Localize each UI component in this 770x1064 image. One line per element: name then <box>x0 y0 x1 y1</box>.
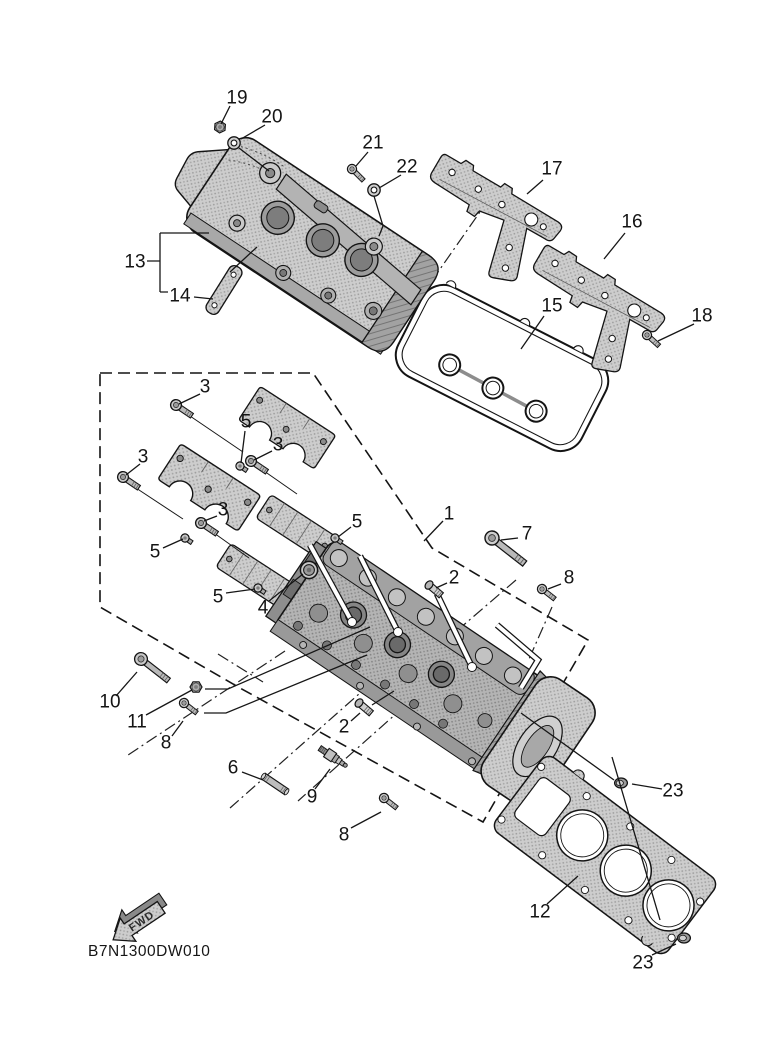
callout-3[interactable]: 3 <box>218 500 229 521</box>
callout-14[interactable]: 14 <box>169 286 191 307</box>
callout-23[interactable]: 23 <box>632 953 653 974</box>
nut-19 <box>212 119 228 134</box>
callout-8[interactable]: 8 <box>339 825 350 846</box>
bolt-3 <box>169 398 195 421</box>
callout-11[interactable]: 11 <box>127 712 147 733</box>
bolt-2 <box>423 579 444 599</box>
callout-5[interactable]: 5 <box>213 587 224 608</box>
callout-5[interactable]: 5 <box>150 542 161 563</box>
callout-3[interactable]: 3 <box>273 435 284 456</box>
bolt-2 <box>353 697 374 717</box>
spark-plug-9 <box>317 744 350 771</box>
plug-4 <box>300 561 317 578</box>
callout-7[interactable]: 7 <box>522 524 533 545</box>
callout-20[interactable]: 20 <box>261 107 282 128</box>
washer-22 <box>368 184 380 196</box>
bolt-3 <box>244 454 270 477</box>
callout-2[interactable]: 2 <box>339 717 350 738</box>
washer-20 <box>228 137 240 149</box>
fwd-arrow: FWD <box>102 887 174 951</box>
bolt-10 <box>132 650 173 686</box>
callout-12[interactable]: 12 <box>529 902 550 923</box>
callout-3[interactable]: 3 <box>138 447 149 468</box>
callout-21[interactable]: 21 <box>362 133 383 154</box>
callout-6[interactable]: 6 <box>228 758 239 779</box>
callout-16[interactable]: 16 <box>621 212 642 233</box>
stud-6 <box>260 772 290 795</box>
callout-17[interactable]: 17 <box>541 159 562 180</box>
callout-2[interactable]: 2 <box>449 568 460 589</box>
callout-3[interactable]: 3 <box>200 377 211 398</box>
callout-1[interactable]: 1 <box>444 504 455 525</box>
bolt-3 <box>194 516 220 539</box>
callout-18[interactable]: 18 <box>691 306 712 327</box>
callout-22[interactable]: 22 <box>396 157 417 178</box>
callout-8[interactable]: 8 <box>564 568 575 589</box>
callout-19[interactable]: 19 <box>226 88 247 109</box>
callout-13[interactable]: 13 <box>124 252 145 273</box>
callout-5[interactable]: 5 <box>352 512 363 533</box>
dowel-23 <box>678 933 691 943</box>
cylinder-head-cover <box>156 115 444 357</box>
part-code: B7N1300DW010 <box>88 943 210 960</box>
callout-8[interactable]: 8 <box>161 733 172 754</box>
bolt-8 <box>378 792 400 812</box>
callout-9[interactable]: 9 <box>307 787 318 808</box>
exploded-parts-diagram: 1920212217161815131433335555417282698810… <box>0 0 770 1064</box>
callout-5[interactable]: 5 <box>241 412 252 433</box>
callout-15[interactable]: 15 <box>541 296 562 317</box>
callout-23[interactable]: 23 <box>662 781 683 802</box>
callout-10[interactable]: 10 <box>99 692 120 713</box>
bolt-8 <box>178 697 200 717</box>
parts-diagram-page: 1920212217161815131433335555417282698810… <box>0 0 770 1064</box>
cover-damper-plate <box>204 263 244 316</box>
bolt-8 <box>536 583 558 603</box>
callout-4[interactable]: 4 <box>258 598 269 619</box>
